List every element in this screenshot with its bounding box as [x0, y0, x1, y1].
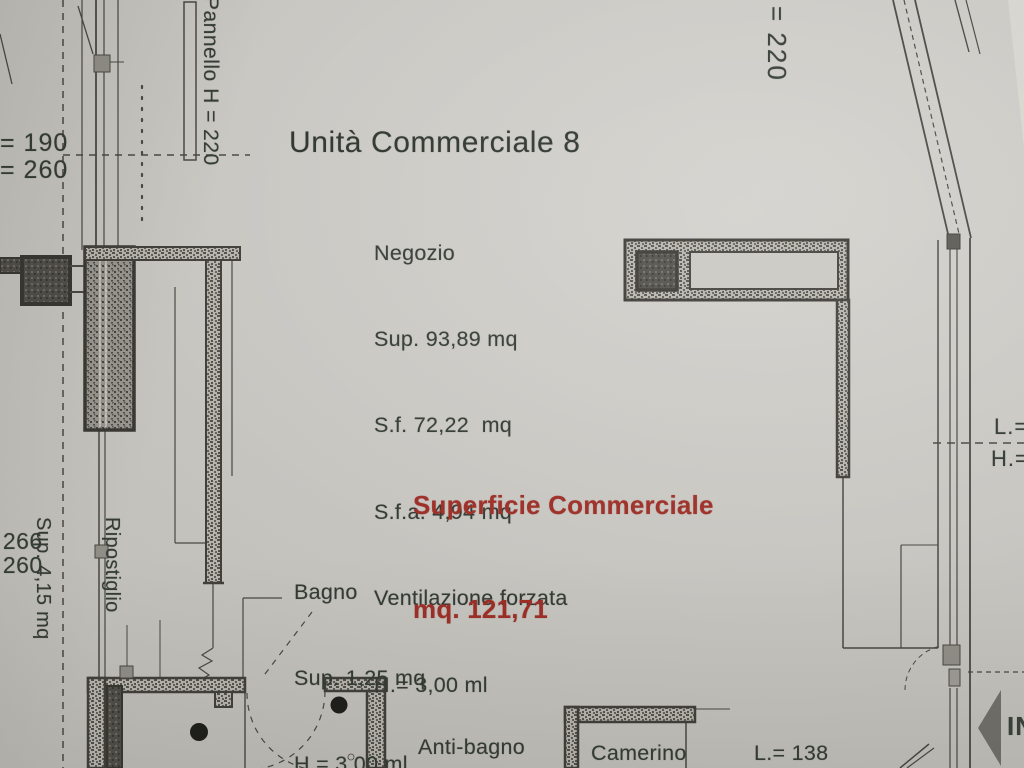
wall-bend-block [947, 234, 960, 249]
negozio-line: Sup. 93,89 mq [374, 325, 568, 354]
commercial-area-value: mq. 121,71 [413, 592, 714, 627]
pillar-left [22, 257, 70, 304]
door-spec-line: L.= 138 [754, 739, 865, 768]
room-name-bagno: Bagno [294, 578, 426, 607]
dimension-left-260: = 260 [0, 156, 68, 185]
wall-column-left [85, 247, 134, 430]
bagno-line: H.= 3,00 ml [294, 750, 426, 768]
entrance-hinge-block [943, 645, 960, 665]
room-name-ripostiglio: Ripostiglio [100, 517, 123, 640]
antibagno-label-block: Anti-bagno Sup. 1,95 mq H.= 3,00 ml [418, 675, 550, 768]
page-title: Unità Commerciale 8 [289, 126, 581, 160]
ripostiglio-label-block: Ripostiglio Sup. 4,15 mq [0, 517, 169, 640]
wall-ripostiglio-top [85, 247, 240, 260]
entrance-in-label: IN [1007, 711, 1024, 742]
wall-ripostiglio-right [206, 260, 221, 583]
wall-bagno-left [88, 678, 105, 768]
room-name-antibagno: Anti-bagno [418, 733, 550, 762]
commercial-area-label: Superficie Commerciale mq. 121,71 [413, 419, 714, 695]
pillar-top-right [637, 252, 677, 290]
pannello-label: Pannello H = 220 [198, 0, 222, 166]
drain-dot [190, 723, 208, 741]
paper-corner-highlight [1008, 0, 1024, 148]
break-symbol [198, 648, 213, 681]
bagno-line: Sup. 1,25 mq [294, 664, 426, 693]
wall-right-vertical [837, 300, 849, 477]
wall-bar-opening [690, 252, 838, 289]
entrance-arrow-icon [978, 690, 1001, 766]
wall-dark-strip [107, 686, 122, 768]
dimension-left-190: = 190 [0, 129, 68, 158]
dimension-right-H: H.= [991, 446, 1024, 472]
entrance-hinge-block [949, 669, 960, 686]
floor-plan-photo: Unità Commerciale 8 Negozio Sup. 93,89 m… [0, 0, 1024, 768]
door-hinge-block [120, 666, 133, 678]
pannello-outline [184, 2, 196, 160]
commercial-area-title: Superficie Commerciale [413, 488, 714, 523]
bagno-label-block: Bagno Sup. 1,25 mq H.= 3,00 ml [294, 520, 426, 768]
wall-stub-left-edge [0, 258, 22, 273]
window-frame-block [94, 55, 110, 72]
wall-camerino-top [565, 707, 695, 722]
room-name-camerino: Camerino [591, 739, 687, 768]
right-panel-dimension: = 220 [761, 6, 792, 82]
ripostiglio-sup: Sup. 4,15 mq [31, 517, 54, 640]
room-name-negozio: Negozio [374, 239, 568, 268]
dimension-right-L: L.= [994, 414, 1024, 440]
entrance-door-specs: L.= 138 aprib.= 120 H.= 260 [754, 681, 865, 768]
wall-notch [215, 692, 232, 707]
